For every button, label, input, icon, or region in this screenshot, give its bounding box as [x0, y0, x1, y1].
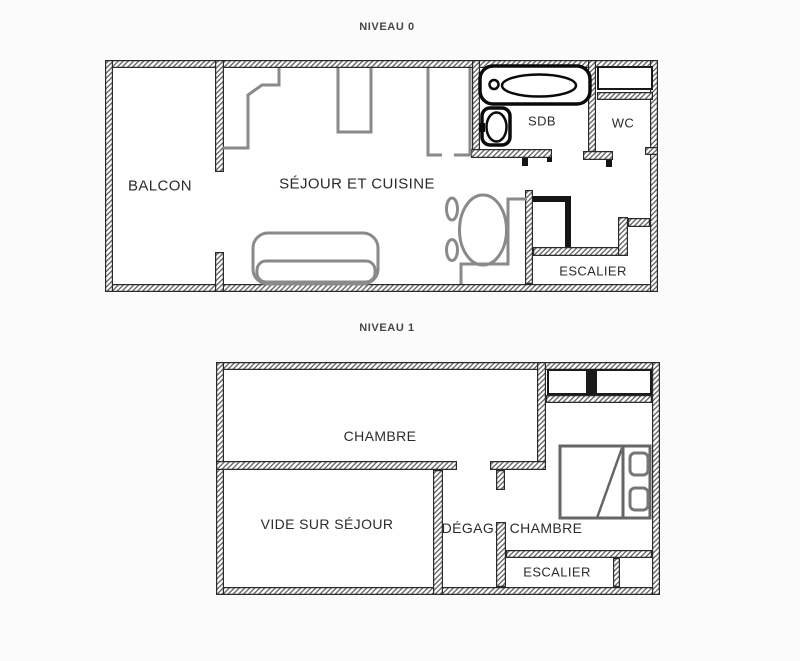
- room-label-balcon: BALCON: [128, 178, 192, 195]
- washbasin-tap-icon: [479, 123, 485, 132]
- plan-niveau-1: CHAMBRE VIDE SUR SÉJOUR DÉGAG. CHAMBRE E…: [216, 362, 660, 595]
- level-0-title: NIVEAU 0: [287, 21, 487, 33]
- appliance-icon: [338, 68, 371, 132]
- room-label-chambre-2: CHAMBRE: [510, 520, 583, 536]
- kitchen-counter-icon: [223, 68, 279, 148]
- appliance-icon: [428, 68, 470, 155]
- level-1-title: NIVEAU 1: [287, 322, 487, 334]
- room-label-sejour-cuisine: SÉJOUR ET CUISINE: [279, 176, 435, 193]
- room-label-degagement: DÉGAG.: [442, 520, 499, 536]
- sofa-seat-icon: [257, 261, 375, 282]
- room-label-chambre-1: CHAMBRE: [344, 428, 417, 444]
- pillow-icon: [630, 453, 648, 475]
- chair-icon: [447, 198, 458, 220]
- room-label-vide-sur-sejour: VIDE SUR SÉJOUR: [261, 516, 394, 532]
- room-label-escalier-n1: ESCALIER: [523, 565, 591, 580]
- bathtub-icon: [480, 66, 590, 104]
- dining-table-icon: [460, 195, 507, 265]
- chair-icon: [447, 240, 458, 261]
- room-label-wc: WC: [612, 116, 634, 131]
- room-label-sdb: SDB: [528, 114, 556, 129]
- pillow-icon: [630, 488, 648, 510]
- plan-niveau-0: BALCON SÉJOUR ET CUISINE SDB WC ESCALIER: [105, 60, 658, 292]
- floor-plan-document: NIVEAU 0: [0, 0, 800, 661]
- room-label-escalier-n0: ESCALIER: [559, 264, 627, 279]
- niveau-1-furniture: [216, 362, 660, 595]
